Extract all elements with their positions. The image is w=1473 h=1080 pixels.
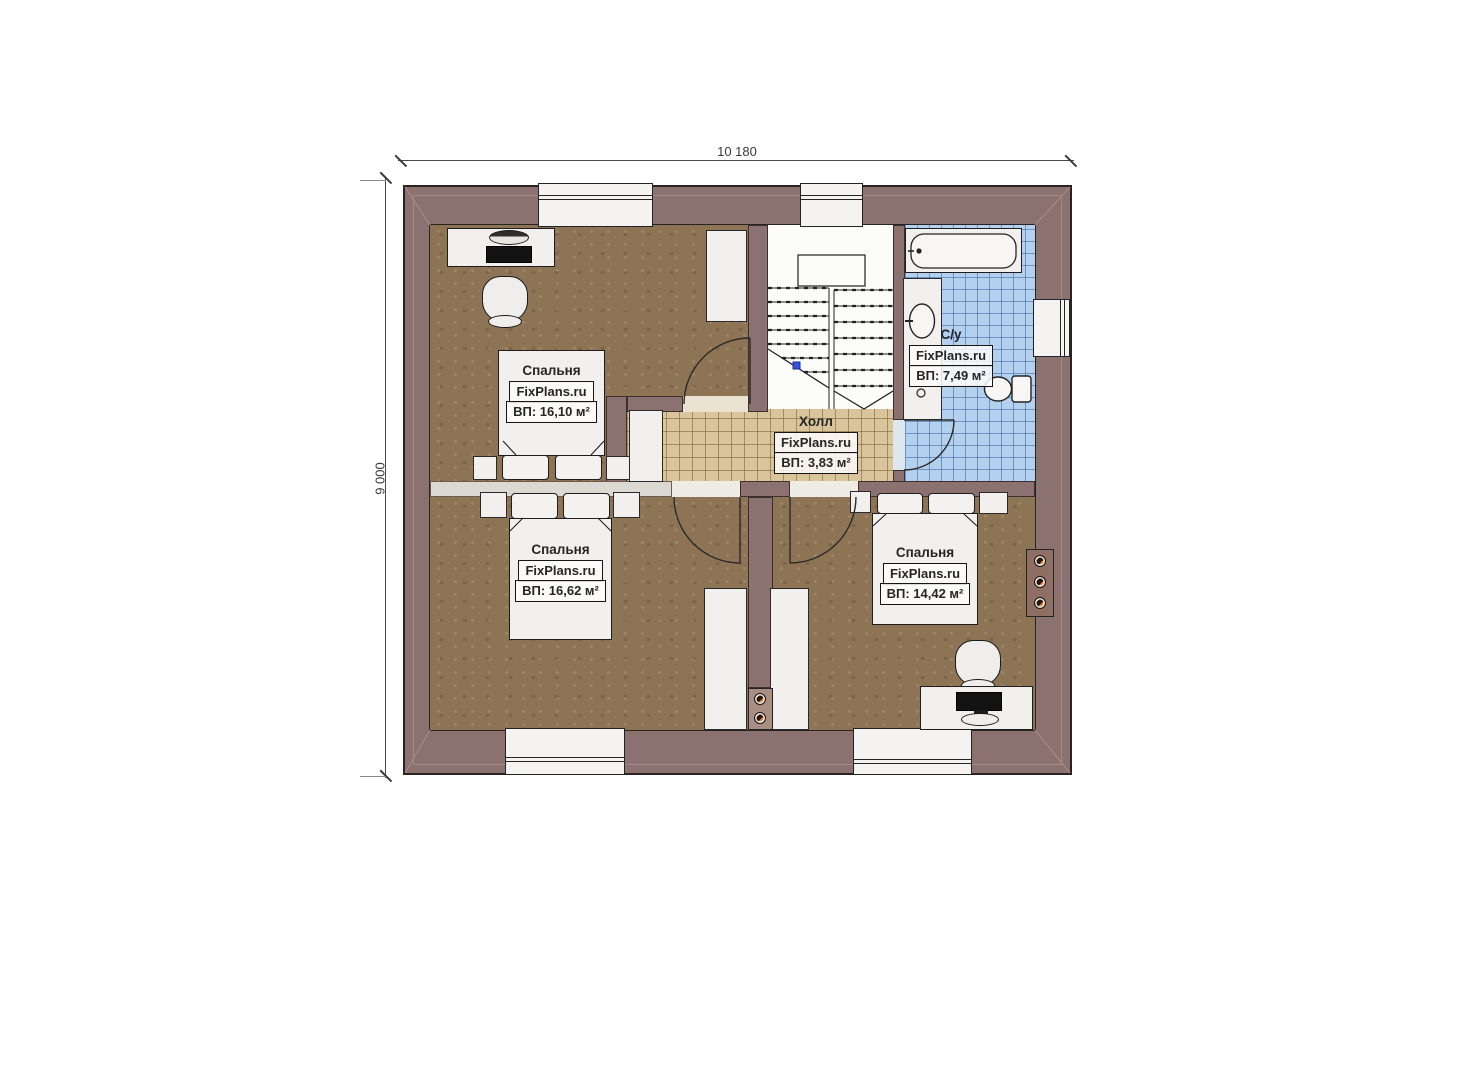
room-area: ВП: 16,10 м² (506, 401, 597, 423)
room-label-bedroom-top-left: Спальня FixPlans.ru ВП: 16,10 м² (498, 363, 605, 423)
bathtub-basin (908, 234, 1016, 268)
room-area: ВП: 16,62 м² (515, 580, 606, 602)
room-label-bedroom-bottom-right: Спальня FixPlans.ru ВП: 14,42 м² (872, 545, 978, 605)
room-area: ВП: 7,49 м² (909, 365, 993, 387)
stair-landing (798, 255, 865, 286)
room-label-bathroom: С/у FixPlans.ru ВП: 7,49 м² (903, 327, 999, 387)
room-area: ВП: 3,83 м² (774, 452, 858, 474)
door-bedroom-bottom-right (790, 497, 856, 563)
brand-watermark: FixPlans.ru (518, 560, 602, 582)
floor-plan-canvas: 10 180 9 000 (0, 0, 1473, 1080)
plan-linework (0, 0, 1473, 1080)
room-label-hall: Холл FixPlans.ru ВП: 3,83 м² (757, 414, 875, 474)
room-name: Спальня (896, 545, 954, 560)
room-name: Холл (799, 414, 833, 429)
door-bedroom-bottom-left (674, 497, 740, 563)
stair-marker (793, 362, 800, 369)
brand-watermark: FixPlans.ru (774, 432, 858, 454)
door-bedroom-top-left (684, 338, 750, 404)
drain (917, 389, 925, 397)
stair-direction-arrow (834, 391, 893, 409)
room-label-bedroom-bottom-left: Спальня FixPlans.ru ВП: 16,62 м² (509, 542, 612, 602)
door-bathroom (904, 420, 954, 470)
corner-miter-lines (405, 187, 1070, 773)
bathtub-faucet (916, 248, 921, 253)
room-name: Спальня (522, 363, 580, 378)
brand-watermark: FixPlans.ru (883, 563, 967, 585)
brand-watermark: FixPlans.ru (509, 381, 593, 403)
staircase (768, 255, 893, 409)
room-name: С/у (940, 327, 961, 342)
brand-watermark: FixPlans.ru (909, 345, 993, 367)
room-area: ВП: 14,42 м² (880, 583, 971, 605)
room-name: Спальня (531, 542, 589, 557)
